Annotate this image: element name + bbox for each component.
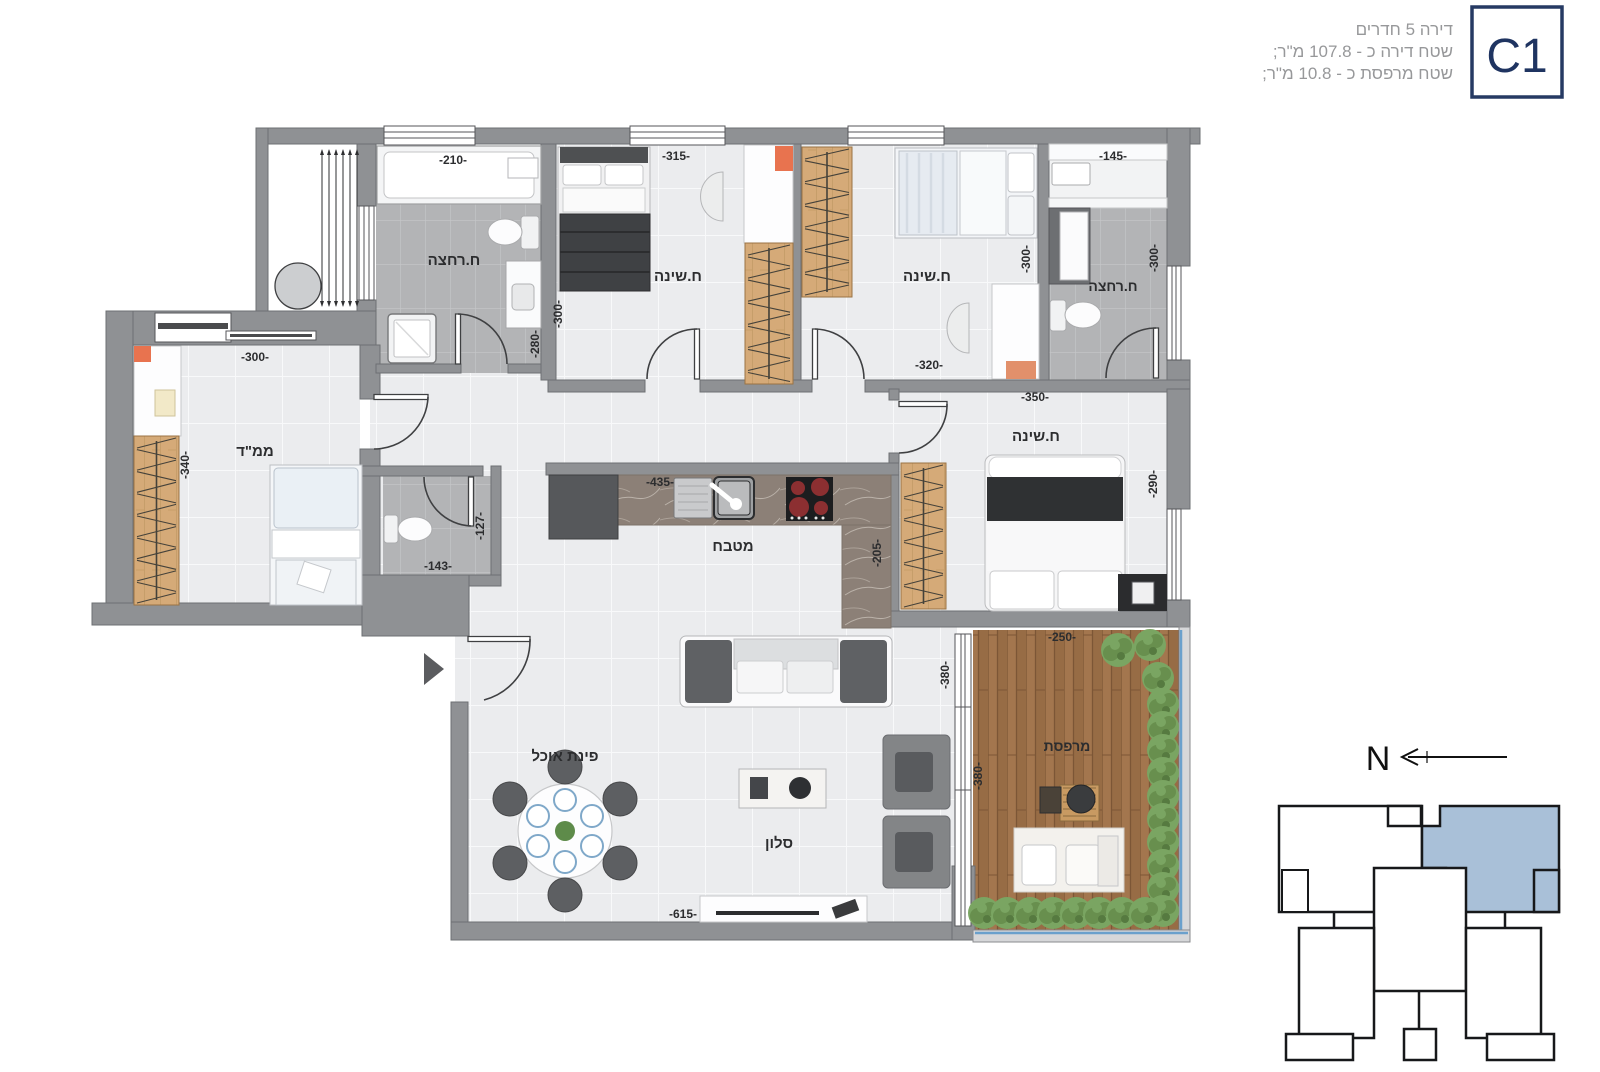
svg-text:-127-: -127- — [473, 512, 487, 540]
svg-text:-350-: -350- — [1021, 390, 1049, 404]
svg-text:-435-: -435- — [646, 475, 674, 489]
svg-text:פינת אוכל: פינת אוכל — [531, 748, 598, 765]
svg-text:-380-: -380- — [938, 661, 952, 689]
svg-text:ח.שינה: ח.שינה — [1012, 428, 1060, 445]
svg-text:-380-: -380- — [971, 762, 985, 790]
svg-text:-340-: -340- — [178, 451, 192, 479]
svg-text:-143-: -143- — [424, 559, 452, 573]
svg-text:-615-: -615- — [669, 907, 697, 921]
svg-text:-205-: -205- — [870, 539, 884, 567]
svg-text:שטח מרפסת כ - 10.8 מ"ר;: שטח מרפסת כ - 10.8 מ"ר; — [1262, 64, 1453, 83]
svg-text:ח.רחצה: ח.רחצה — [428, 252, 481, 269]
svg-text:-210-: -210- — [439, 153, 467, 167]
svg-text:שטח דירה כ - 107.8 מ"ר;: שטח דירה כ - 107.8 מ"ר; — [1273, 42, 1453, 61]
svg-text:ח.רחצה: ח.רחצה — [1088, 278, 1137, 294]
svg-text:-300-: -300- — [241, 350, 269, 364]
svg-text:-250-: -250- — [1048, 630, 1076, 644]
svg-text:-145-: -145- — [1099, 149, 1127, 163]
svg-text:סלון: סלון — [765, 835, 793, 852]
svg-text:ח.שינה: ח.שינה — [903, 268, 951, 285]
svg-text:מרפסת: מרפסת — [1044, 738, 1091, 754]
svg-text:ח.שינה: ח.שינה — [654, 268, 702, 285]
svg-text:מטבח: מטבח — [712, 538, 753, 555]
svg-text:-320-: -320- — [915, 358, 943, 372]
svg-text:-315-: -315- — [662, 149, 690, 163]
svg-text:C1: C1 — [1486, 30, 1547, 83]
svg-text:-280-: -280- — [528, 330, 542, 358]
svg-text:-300-: -300- — [1019, 245, 1033, 273]
svg-text:-290-: -290- — [1146, 470, 1160, 498]
svg-text:ממ"ד: ממ"ד — [236, 443, 274, 460]
svg-text:דירה 5 חדרים: דירה 5 חדרים — [1356, 20, 1453, 39]
svg-text:-300-: -300- — [1147, 244, 1161, 272]
svg-text:-300-: -300- — [551, 300, 565, 328]
svg-text:N: N — [1366, 740, 1391, 778]
